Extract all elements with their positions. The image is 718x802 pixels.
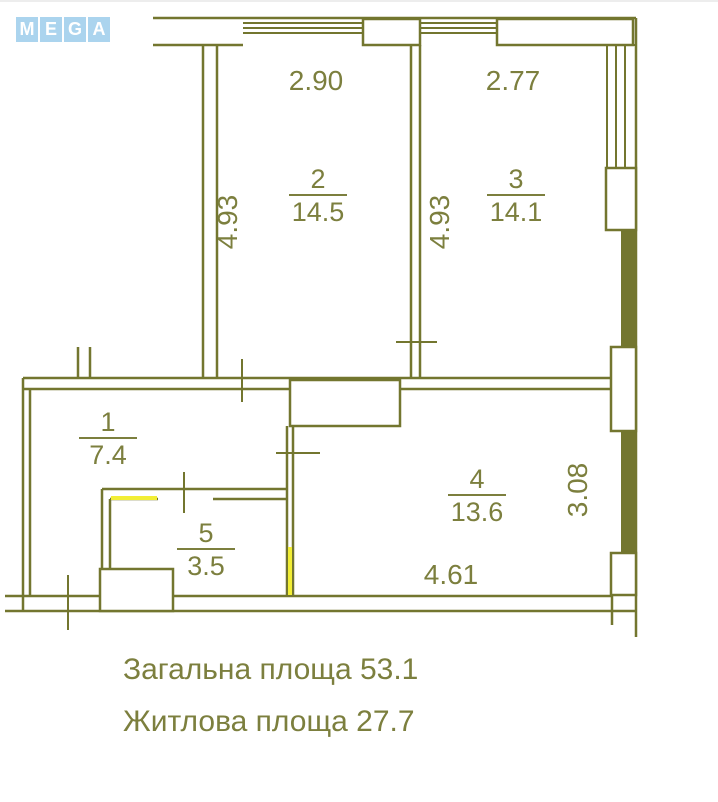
dimension-room3-width: 2.77: [486, 65, 541, 97]
top-window-room3: [420, 23, 497, 33]
room-area: 13.6: [448, 496, 506, 528]
dimension-room4-width: 4.61: [424, 559, 479, 591]
total-area-text: Загальна площа 53.1: [123, 653, 418, 687]
room-label-2: 2 14.5: [289, 164, 347, 228]
room-label-5: 5 3.5: [177, 518, 235, 582]
room-number: 5: [177, 518, 235, 550]
dimension-room2-height: 4.93: [212, 195, 244, 250]
dimension-room3-height: 4.93: [424, 195, 456, 250]
top-window-room2: [243, 23, 363, 33]
room-label-4: 4 13.6: [448, 464, 506, 528]
room-area: 3.5: [177, 550, 235, 582]
room-number: 3: [487, 164, 545, 196]
dimension-room2-width: 2.90: [289, 65, 344, 97]
room-number: 1: [79, 407, 137, 439]
room-label-1: 1 7.4: [79, 407, 137, 471]
room-label-3: 3 14.1: [487, 164, 545, 228]
right-window-room3: [607, 45, 636, 168]
right-glazed-panel-room3: [621, 231, 635, 346]
room-area: 7.4: [79, 439, 137, 471]
room-number: 4: [448, 464, 506, 496]
walls-group: [5, 18, 637, 637]
room-number: 2: [289, 164, 347, 196]
floorplan-page: M E G A: [0, 0, 718, 802]
right-glazed-panel-room4: [621, 432, 635, 552]
dimension-room4-height: 3.08: [562, 463, 594, 518]
room-area: 14.5: [289, 196, 347, 228]
shaft-block: [100, 569, 173, 611]
room-area: 14.1: [487, 196, 545, 228]
living-area-text: Житлова площа 27.7: [123, 705, 415, 739]
